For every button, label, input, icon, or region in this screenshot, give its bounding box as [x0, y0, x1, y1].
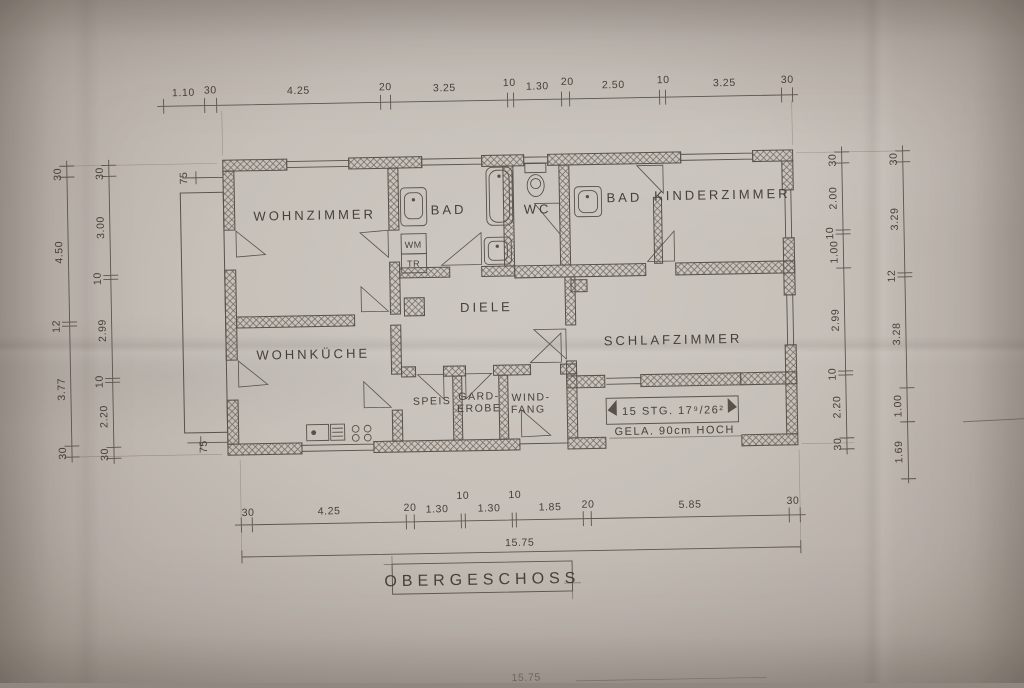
dim-bot-5: 10: [456, 490, 469, 502]
chimney-block: [404, 298, 424, 316]
dim-lo-3: 12: [51, 320, 63, 333]
dim-top-6: 10: [503, 77, 516, 89]
kitchen-sink-icon: [307, 424, 345, 441]
dim-bot-6: 1.30: [478, 502, 501, 514]
dim-bot-1: 30: [242, 507, 255, 519]
dim-lo-5: 30: [57, 447, 69, 460]
stove-icon: [352, 425, 371, 441]
room-label-wohnkueche: WOHNKÜCHE: [256, 346, 370, 363]
dim-ri-7: 2.20: [831, 396, 843, 419]
chimney-block-2: [571, 280, 587, 292]
dim-balcony-bottom: 75: [198, 440, 210, 453]
blueprint-paper: 1.10 30 4.25 20 3.25 10 1.30 20 2.50 10 …: [0, 0, 1024, 683]
room-label-schlafzimmer: SCHLAFZIMMER: [604, 331, 743, 349]
plan-title: OBERGESCHOSS: [384, 570, 580, 591]
room-label-kinderzimmer: KINDERZIMMER: [654, 186, 791, 203]
dim-labels-left-inner: 30 3.00 10 2.99 10 2.20 30: [90, 167, 111, 461]
dim-ri-5: 2.99: [829, 309, 841, 332]
dim-ro-6: 1.69: [893, 440, 905, 463]
room-label-bad1: BAD: [431, 202, 467, 218]
dim-bottom-total: 15.75: [505, 537, 534, 550]
dim-bot-10: 5.85: [679, 499, 702, 511]
dim-top-11: 3.25: [713, 77, 736, 89]
cropped-total-label: 15.75: [511, 672, 540, 683]
cropped-lower-dimension: 15.75: [306, 667, 766, 683]
room-label-speis: SPEIS: [413, 395, 452, 408]
dim-bot-8: 1.85: [539, 501, 562, 513]
dim-lo-4: 3.77: [56, 378, 68, 401]
dim-top-4: 20: [379, 81, 392, 93]
dim-ri-4: 1.00: [828, 241, 840, 264]
dim-top-10: 10: [657, 74, 670, 86]
dim-labels-left-outer: 30 4.50 12 3.77 30: [48, 168, 69, 460]
room-label-garderobe-1: GARD-: [458, 390, 500, 403]
dim-lo-2: 4.50: [53, 241, 65, 264]
dim-ri-2: 2.00: [827, 187, 839, 210]
toilet-icon: [525, 163, 547, 196]
dim-top-12: 30: [781, 74, 794, 86]
stair-label: 15 STG. 17⁹/26²: [622, 404, 725, 418]
dim-li-4: 2.99: [97, 319, 109, 342]
dim-bot-4: 1.30: [426, 503, 449, 515]
dimension-lines: [59, 84, 1024, 567]
dim-li-5: 10: [94, 375, 106, 388]
dim-ri-3: 10: [824, 227, 836, 240]
balcony: [180, 192, 227, 433]
dim-ri-8: 30: [832, 437, 844, 450]
dim-top-1: 1.10: [172, 87, 195, 99]
label-wm: WM: [405, 240, 422, 250]
dim-top-7: 1.30: [526, 80, 549, 92]
dim-bot-11: 30: [786, 495, 799, 507]
dim-li-2: 3.00: [95, 216, 107, 239]
dim-labels-right-outer: 30 3.29 12 3.28 1.00 1.69: [884, 152, 906, 463]
dim-li-1: 30: [94, 167, 106, 180]
washbasin-icon: [400, 188, 427, 226]
room-label-bad2: BAD: [606, 190, 642, 206]
dim-ro-1: 30: [888, 152, 900, 165]
dim-bot-9: 20: [581, 499, 594, 511]
floor-plan-drawing: 1.10 30 4.25 20 3.25 10 1.30 20 2.50 10 …: [0, 0, 1024, 683]
stair-railing-note: GELA. 90cm HOCH: [614, 424, 735, 438]
dim-li-6: 2.20: [98, 405, 110, 428]
dim-li-3: 10: [92, 272, 104, 285]
dim-top-2: 30: [204, 84, 217, 96]
dim-top-8: 20: [561, 76, 574, 88]
dim-ri-1: 30: [827, 154, 839, 167]
washbasin3-icon: [574, 186, 602, 216]
label-tr: TR: [407, 259, 420, 269]
edge-mark: [964, 419, 1024, 422]
dim-top-3: 4.25: [287, 85, 310, 97]
dim-labels-bottom: 30 4.25 20 1.30 10 1.30 10 1.85 20 5.85 …: [241, 484, 800, 554]
dim-labels-top: 1.10 30 4.25 20 3.25 10 1.30 20 2.50 10 …: [172, 72, 794, 99]
room-label-garderobe-2: EROBE: [457, 402, 501, 415]
room-label-diele: DIELE: [460, 299, 513, 315]
room-label-wohnzimmer: WOHNZIMMER: [253, 206, 376, 223]
dim-lo-1: 30: [52, 168, 64, 181]
dim-labels-right-inner: 30 2.00 10 1.00 2.99 10 2.20 30: [823, 154, 844, 451]
room-label-windfang-1: WIND-: [511, 391, 550, 404]
dim-balcony-top: 75: [178, 171, 190, 184]
dim-ro-4: 3.28: [891, 322, 903, 345]
dim-top-9: 2.50: [602, 79, 625, 91]
dim-bot-2: 4.25: [318, 505, 341, 517]
dim-ro-3: 12: [886, 269, 898, 282]
dim-ro-2: 3.29: [889, 207, 901, 230]
title-block: OBERGESCHOSS: [384, 553, 581, 603]
dim-bot-7: 10: [508, 489, 521, 501]
dim-top-5: 3.25: [433, 82, 456, 94]
dim-ro-5: 1.00: [892, 394, 904, 417]
dim-bot-3: 20: [404, 502, 417, 514]
dim-ri-6: 10: [827, 368, 839, 381]
dim-li-7: 30: [99, 448, 111, 461]
room-label-windfang-2: FANG: [511, 403, 546, 416]
room-label-wc: WC: [524, 201, 552, 217]
